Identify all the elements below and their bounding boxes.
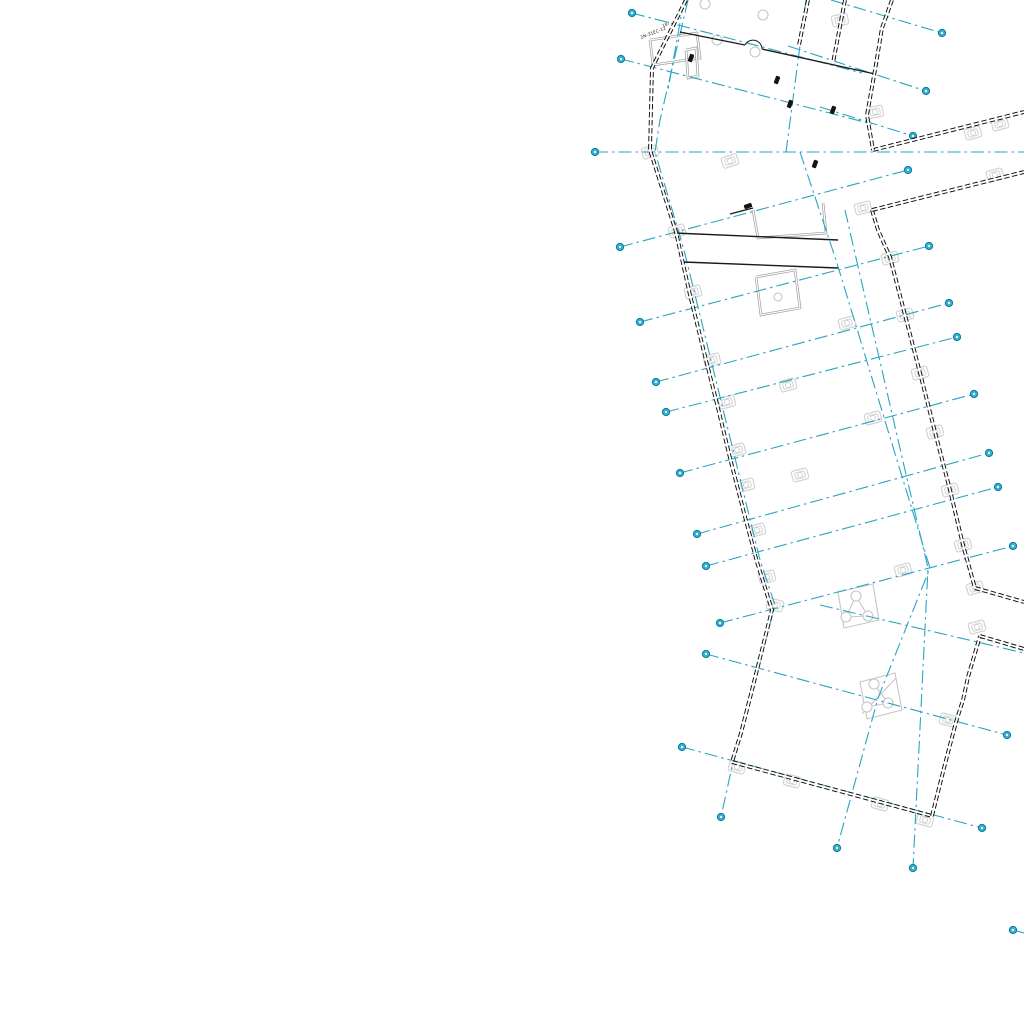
grid-marker (652, 378, 659, 385)
grid-marker-dot (631, 12, 633, 14)
grid-marker-dot (696, 533, 698, 535)
grid-marker-dot (912, 867, 914, 869)
column-outline (718, 395, 736, 410)
grid-marker-dot (1012, 929, 1014, 931)
grid-line-M9 (820, 605, 1024, 653)
grid-marker-dot (997, 486, 999, 488)
grid-marker (994, 483, 1001, 490)
grid-marker-dot (594, 151, 596, 153)
grid-marker-dot (679, 472, 681, 474)
grid-marker-dot (619, 246, 621, 248)
bottom-wall-core (732, 762, 932, 816)
grid-marker-dot (836, 847, 838, 849)
columns-layer (641, 13, 1009, 827)
column-inner (724, 156, 735, 165)
grid-marker (953, 333, 960, 340)
drawing-area: 2N-31EC-12187 (0, 0, 1024, 1024)
grid-marker (833, 844, 840, 851)
grid-marker-dot (988, 452, 990, 454)
grid-marker (636, 318, 643, 325)
grid-marker (1003, 731, 1010, 738)
grid-line-P4 (668, 0, 684, 90)
corridor-wall-2 (683, 262, 838, 268)
column-symbol (718, 395, 736, 410)
column-symbol (968, 620, 986, 635)
grid-line-M1 (620, 170, 908, 247)
mid-right-wall-core (872, 210, 975, 588)
grid-marker (985, 449, 992, 456)
grid-marker (678, 743, 685, 750)
column-symbol (791, 468, 809, 483)
labels-layer: 2N-31EC-12187 (640, 20, 837, 209)
grid-marker-dot (941, 32, 943, 34)
grid-marker (938, 29, 945, 36)
grid-marker-dot (705, 565, 707, 567)
grid-marker (617, 55, 624, 62)
grid-marker (1009, 926, 1016, 933)
glyph-circle (869, 679, 879, 689)
grid-marker-dot (681, 746, 683, 748)
top-room-wall-b (762, 49, 875, 74)
left-wall-core (650, 0, 772, 762)
grid-marker-dot (907, 169, 909, 171)
grid-marker (970, 390, 977, 397)
column-outline (721, 153, 740, 168)
column-dot (872, 109, 878, 115)
grid-line-P1 (655, 0, 775, 817)
grid-marker-dot (956, 336, 958, 338)
top-fragment-1-core (833, 0, 845, 63)
grid-marker (693, 530, 700, 537)
column-symbol (779, 378, 797, 393)
grid-marker-dot (948, 302, 950, 304)
grid-marker-dot (973, 393, 975, 395)
grid-marker (676, 469, 683, 476)
glyph-circle (841, 612, 851, 622)
grid-marker (922, 87, 929, 94)
glyph-circle (851, 591, 861, 601)
grid-marker-dot (639, 321, 641, 323)
grid-marker (591, 148, 598, 155)
column-circle (774, 293, 782, 301)
grid-marker (945, 299, 952, 306)
grid-layer (591, 0, 1024, 934)
grid-marker-dot (705, 653, 707, 655)
small-annotation-mark (812, 159, 819, 168)
small-annotation-mark (774, 75, 781, 84)
grid-marker (628, 9, 635, 16)
column-outline (791, 468, 809, 483)
notch-lower-wall-core (980, 636, 1024, 649)
stair-lower-glyph (860, 673, 902, 719)
top-fragment-2-core (799, 0, 808, 45)
grid-marker-dot (981, 827, 983, 829)
grid-marker-dot (620, 58, 622, 60)
column-circle (758, 10, 768, 20)
floorplan-canvas: 2N-31EC-12187 (0, 0, 1024, 1024)
grid-marker-dot (925, 90, 927, 92)
grid-marker (1009, 542, 1016, 549)
grid-marker (717, 813, 724, 820)
top-right-wall (867, 0, 892, 150)
small-annotation (812, 159, 819, 168)
glyph-circle (862, 702, 872, 712)
column-outline (968, 620, 986, 635)
grid-marker-dot (1006, 734, 1008, 736)
grid-marker-dot (912, 135, 914, 137)
exterior-walls-layer (650, 0, 1024, 816)
grid-marker-dot (720, 816, 722, 818)
grid-marker (716, 619, 723, 626)
gray-circles-layer (700, 0, 782, 301)
grid-marker (925, 242, 932, 249)
column-symbol (737, 478, 755, 493)
grid-marker (978, 824, 985, 831)
interior-walls-layer (674, 32, 875, 268)
grid-line-B2 (682, 747, 982, 828)
grid-marker (904, 166, 911, 173)
grid-marker (702, 562, 709, 569)
grid-marker (909, 864, 916, 871)
grid-line-T2 (621, 59, 872, 124)
step-wall-stub (730, 208, 753, 214)
grid-marker-dot (665, 411, 667, 413)
gray-partitions-layer (650, 33, 826, 315)
notch-upper-wall-core (975, 588, 1024, 602)
grid-marker-dot (719, 622, 721, 624)
column-symbol (721, 153, 740, 168)
column-outline (737, 478, 755, 493)
grid-marker-dot (1012, 545, 1014, 547)
grid-marker (662, 408, 669, 415)
grid-marker-dot (655, 381, 657, 383)
grid-line-P3 (845, 210, 928, 868)
wing-lower-wall-core (872, 172, 1024, 210)
column-outline (779, 378, 797, 393)
grid-marker (702, 650, 709, 657)
column-dot (860, 205, 866, 211)
grid-line-T4 (788, 46, 926, 91)
grid-marker (616, 243, 623, 250)
grid-marker-dot (928, 245, 930, 247)
column-outline (854, 201, 872, 216)
column-circle (750, 47, 760, 57)
small-annotation (774, 75, 781, 84)
column-symbol (854, 201, 872, 216)
column-circle (700, 0, 710, 9)
